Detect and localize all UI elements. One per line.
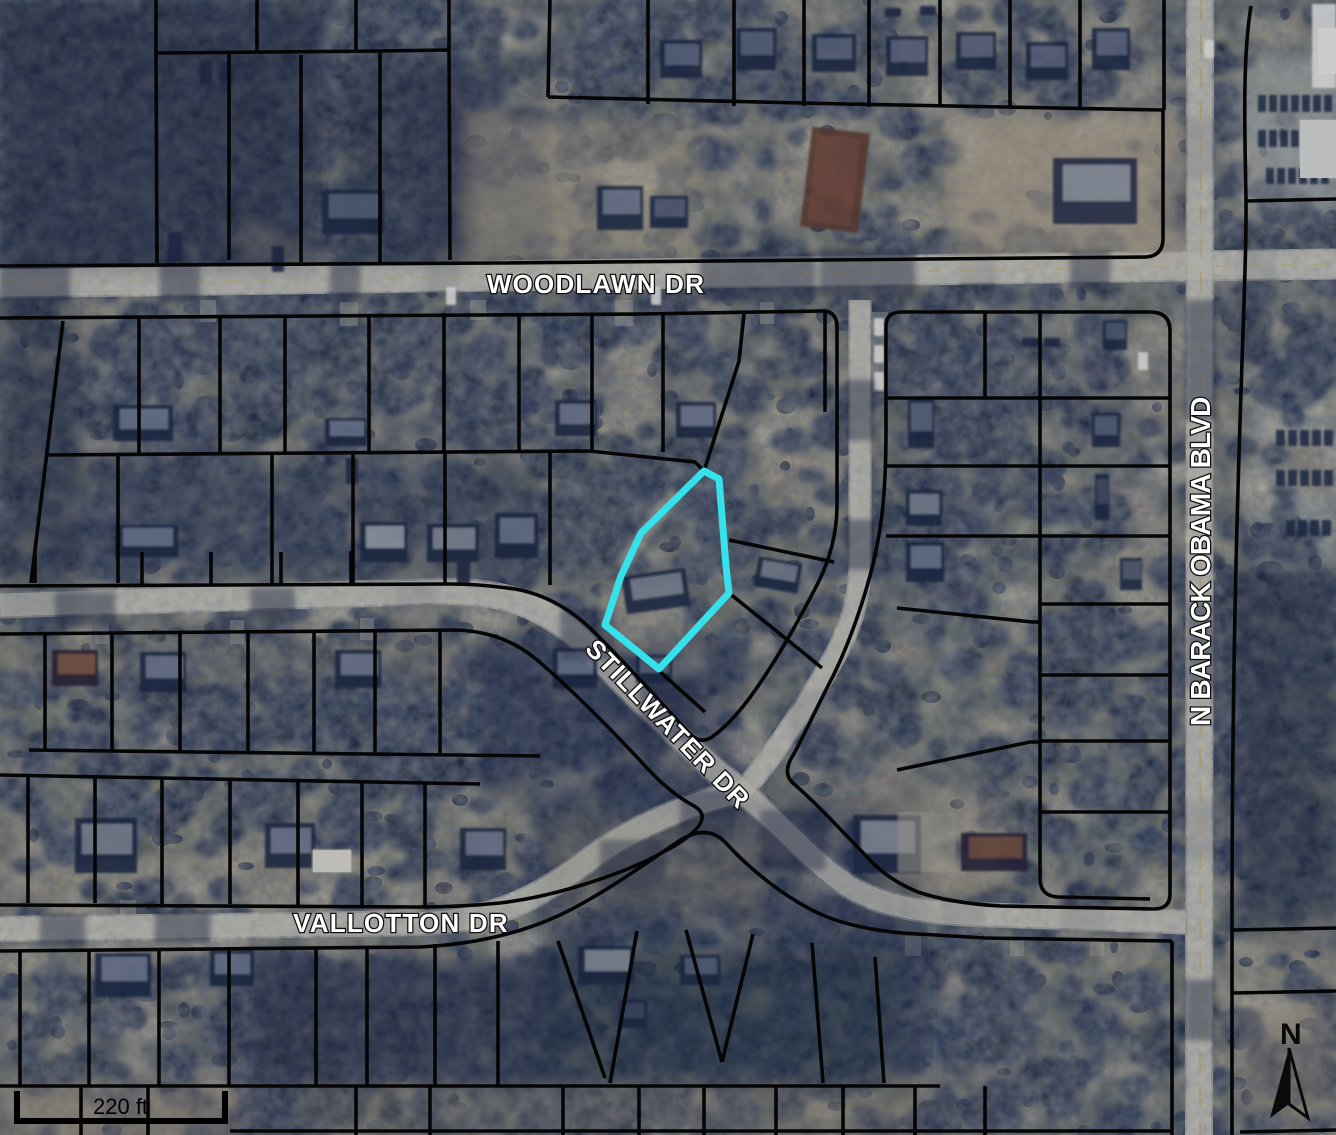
svg-text:WOODLAWN DR: WOODLAWN DR bbox=[487, 269, 705, 299]
svg-text:220 ft: 220 ft bbox=[93, 1094, 148, 1119]
svg-text:N: N bbox=[1280, 1018, 1302, 1051]
svg-text:N BARACK OBAMA BLVD: N BARACK OBAMA BLVD bbox=[1185, 397, 1216, 726]
svg-text:VALLOTTON DR: VALLOTTON DR bbox=[293, 908, 509, 938]
